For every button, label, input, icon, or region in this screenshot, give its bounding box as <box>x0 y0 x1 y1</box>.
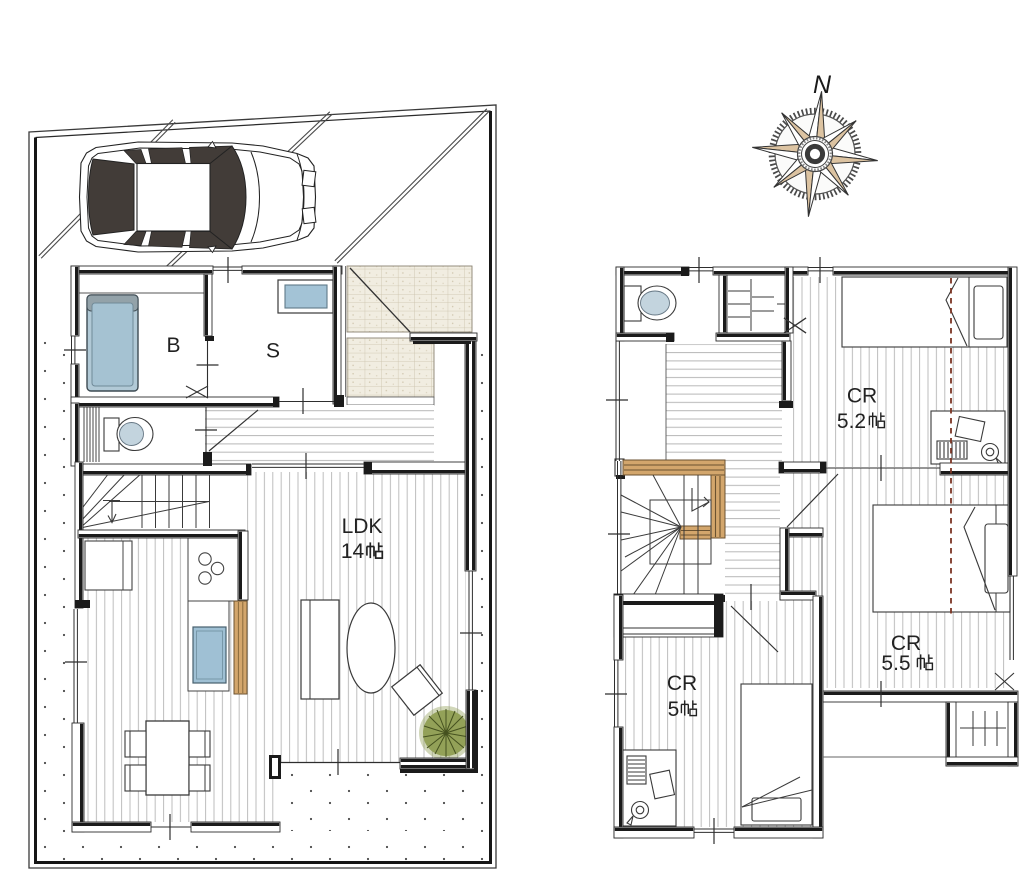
svg-text:5.2: 5.2 <box>837 410 866 433</box>
svg-text:B: B <box>166 334 180 357</box>
svg-text:N: N <box>813 71 832 99</box>
svg-text:CR: CR <box>667 672 697 695</box>
svg-text:5.5: 5.5 <box>881 652 910 675</box>
svg-text:14: 14 <box>341 540 365 563</box>
svg-text:S: S <box>266 340 280 363</box>
svg-text:5: 5 <box>668 698 680 721</box>
svg-text:LDK: LDK <box>342 515 383 538</box>
svg-text:CR: CR <box>847 385 877 408</box>
